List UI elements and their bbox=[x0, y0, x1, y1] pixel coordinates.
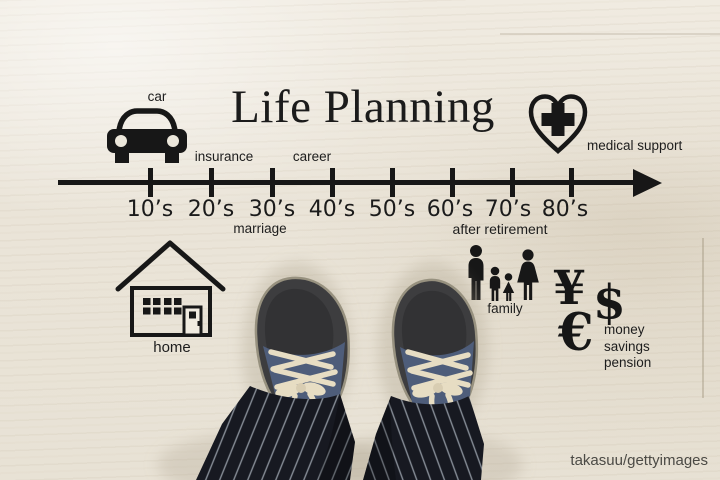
right-pant-leg bbox=[363, 396, 484, 480]
life-planning-scene: Life Planning car medical support 10’s 2… bbox=[0, 0, 720, 480]
left-pant-leg bbox=[196, 386, 355, 480]
feet-and-shoes-photo bbox=[0, 0, 720, 480]
watermark-credit: takasuu/gettyimages bbox=[570, 452, 708, 469]
